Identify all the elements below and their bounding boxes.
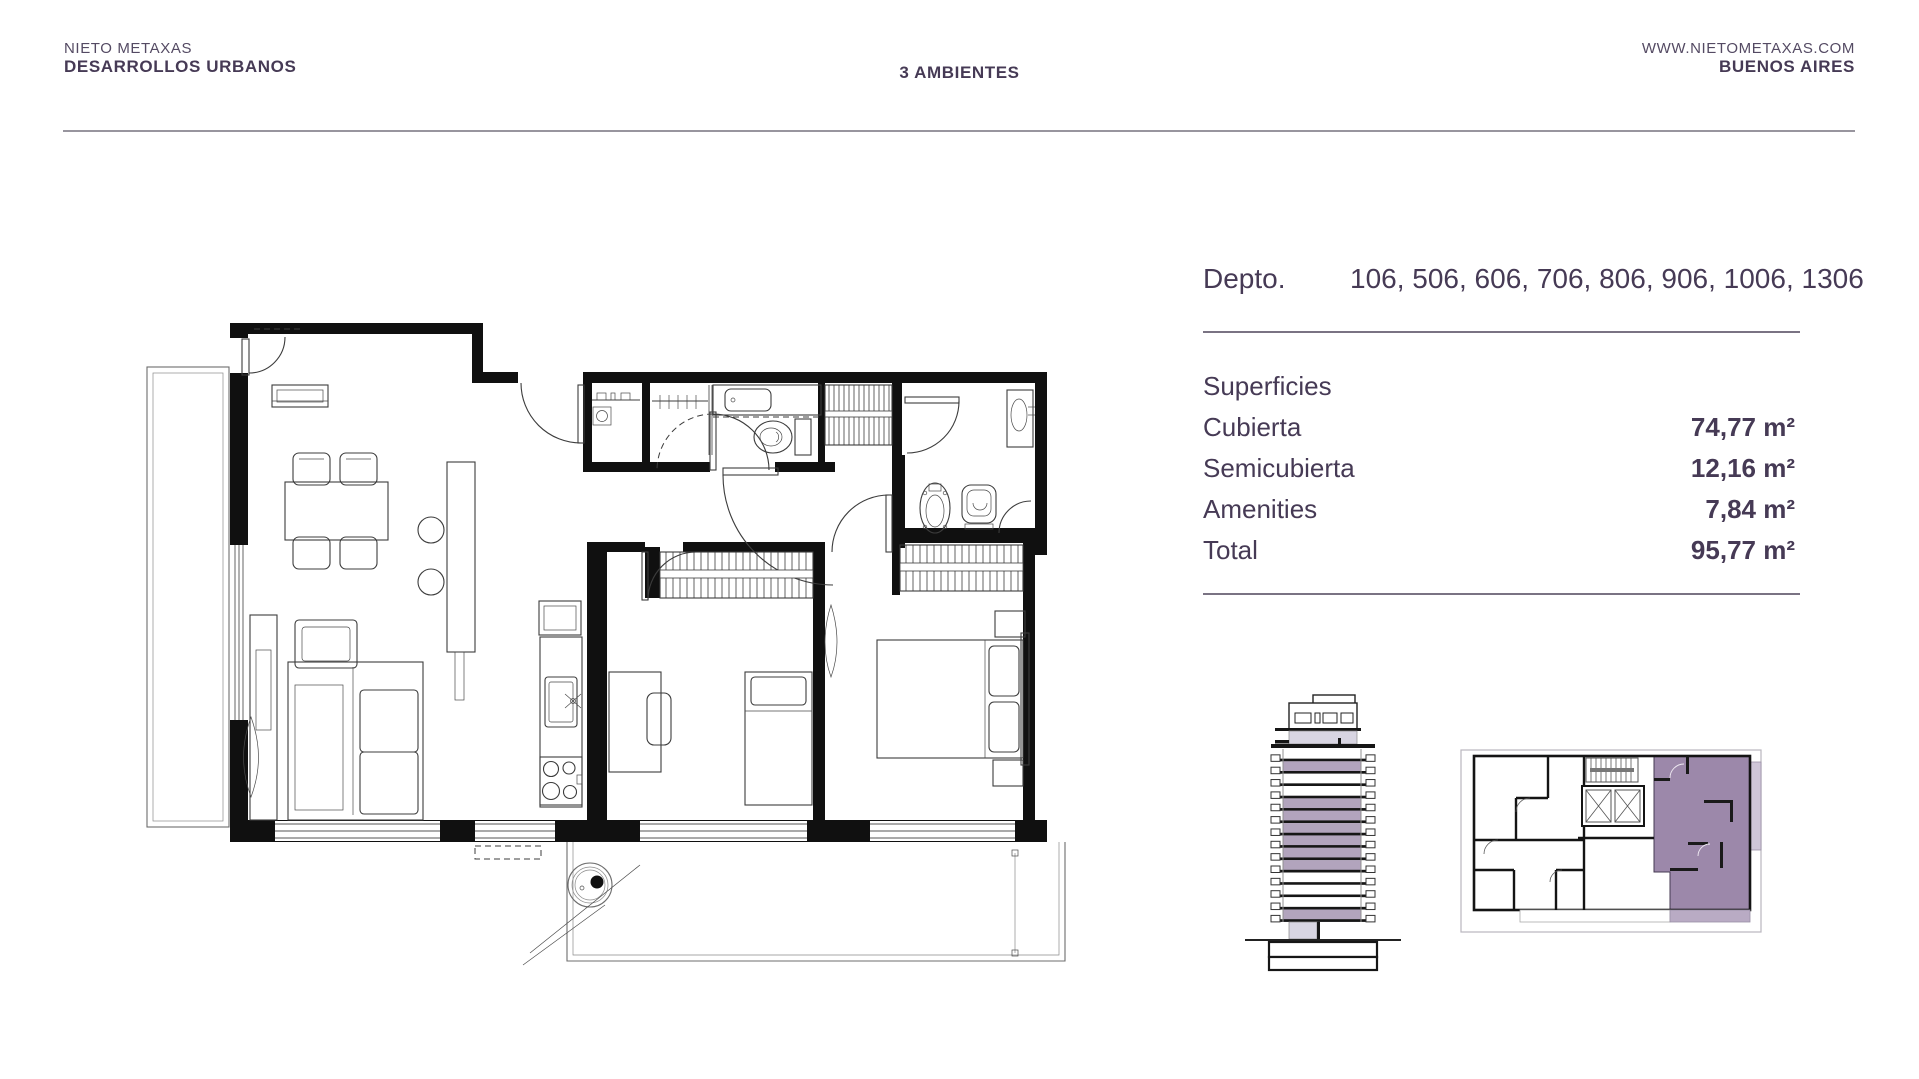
service-strip [592, 385, 821, 455]
bidet [920, 483, 950, 533]
desk [609, 672, 671, 772]
table-row: Semicubierta 12,16 m² [1203, 448, 1795, 489]
kitchen [539, 601, 582, 807]
contact-block: WWW.NIETOMETAXAS.COM BUENOS AIRES [1642, 40, 1855, 77]
sink [545, 677, 581, 727]
row-label: Cubierta [1203, 407, 1301, 448]
table-row: Cubierta 74,77 m² [1203, 407, 1795, 448]
window-left-wall [230, 545, 248, 720]
wardrobe-bedroom2 [900, 545, 1023, 591]
key-plan [1458, 742, 1768, 942]
surfaces-table: Superficies Cubierta 74,77 m² Semicubier… [1203, 366, 1795, 571]
entry-door [521, 383, 584, 443]
depto-label: Depto. [1203, 263, 1286, 295]
website-url: WWW.NIETOMETAXAS.COM [1642, 40, 1855, 57]
stool [418, 517, 444, 543]
window-bedroom2 [870, 821, 1015, 841]
bedroom2-door [832, 495, 892, 552]
single-bed [745, 672, 812, 805]
railing-detail [1012, 850, 1018, 956]
stairs [1586, 758, 1638, 782]
row-label: Amenities [1203, 489, 1317, 530]
row-value: 7,84 m² [1705, 489, 1795, 530]
dining-table [285, 453, 388, 569]
double-bed [877, 633, 1029, 765]
floor-plan [135, 305, 1070, 975]
balcony-left [147, 367, 229, 827]
ground-floor [1245, 922, 1401, 970]
stove [540, 757, 582, 805]
header-divider [63, 130, 1855, 132]
curtain [825, 605, 837, 677]
window-kitchen [475, 821, 555, 859]
panel-divider-bottom [1203, 593, 1800, 595]
bedroom-1 [609, 605, 837, 805]
row-value: 74,77 m² [1691, 407, 1795, 448]
laundry-closet [592, 393, 640, 425]
plan-walls [230, 323, 1047, 842]
bathroom2 [920, 390, 1035, 533]
panel-divider-top [1203, 331, 1800, 333]
row-label: Total [1203, 530, 1258, 571]
page-title: 3 AMBIENTES [0, 63, 1919, 83]
kitchen-island [418, 462, 475, 700]
bench [993, 760, 1023, 786]
row-label: Semicubierta [1203, 448, 1355, 489]
window-living [275, 821, 440, 841]
living-dining [244, 385, 476, 820]
wardrobe-hall [825, 385, 892, 445]
unit-balcony-tab [1750, 762, 1761, 850]
sofa-set [288, 620, 423, 820]
brand-name: NIETO METAXAS [64, 40, 296, 57]
city-label: BUENOS AIRES [1642, 57, 1855, 77]
bedroom-2 [877, 611, 1029, 786]
toilet-2 [962, 485, 996, 529]
row-value: 12,16 m² [1691, 448, 1795, 489]
surfaces-title: Superficies [1203, 366, 1795, 407]
floor-bands [1271, 749, 1375, 922]
tv-unit [244, 615, 278, 820]
bathroom2-door [905, 397, 959, 453]
table-row: Total 95,77 m² [1203, 530, 1795, 571]
brochure-page: NIETO METAXAS DESARROLLOS URBANOS 3 AMBI… [0, 0, 1919, 1079]
closet-rod [652, 395, 708, 409]
window-bedroom1 [640, 821, 807, 841]
table-row: Amenities 7,84 m² [1203, 489, 1795, 530]
bathroom1-door [657, 412, 769, 470]
balcony-bottom [523, 842, 1065, 965]
stool [418, 569, 444, 595]
penthouse [1271, 695, 1375, 748]
spa-tub [523, 863, 640, 965]
building-elevation [1243, 683, 1403, 983]
sideboard [272, 385, 328, 407]
wardrobe-bedroom1 [660, 552, 813, 598]
toilet-1 [754, 419, 811, 455]
bathroom1-vanity [713, 385, 821, 417]
unit-balcony-band [1670, 910, 1750, 922]
balcony-band [1520, 910, 1670, 922]
row-value: 95,77 m² [1691, 530, 1795, 571]
depto-numbers: 106, 506, 606, 706, 806, 906, 1006, 1306 [1350, 263, 1864, 295]
